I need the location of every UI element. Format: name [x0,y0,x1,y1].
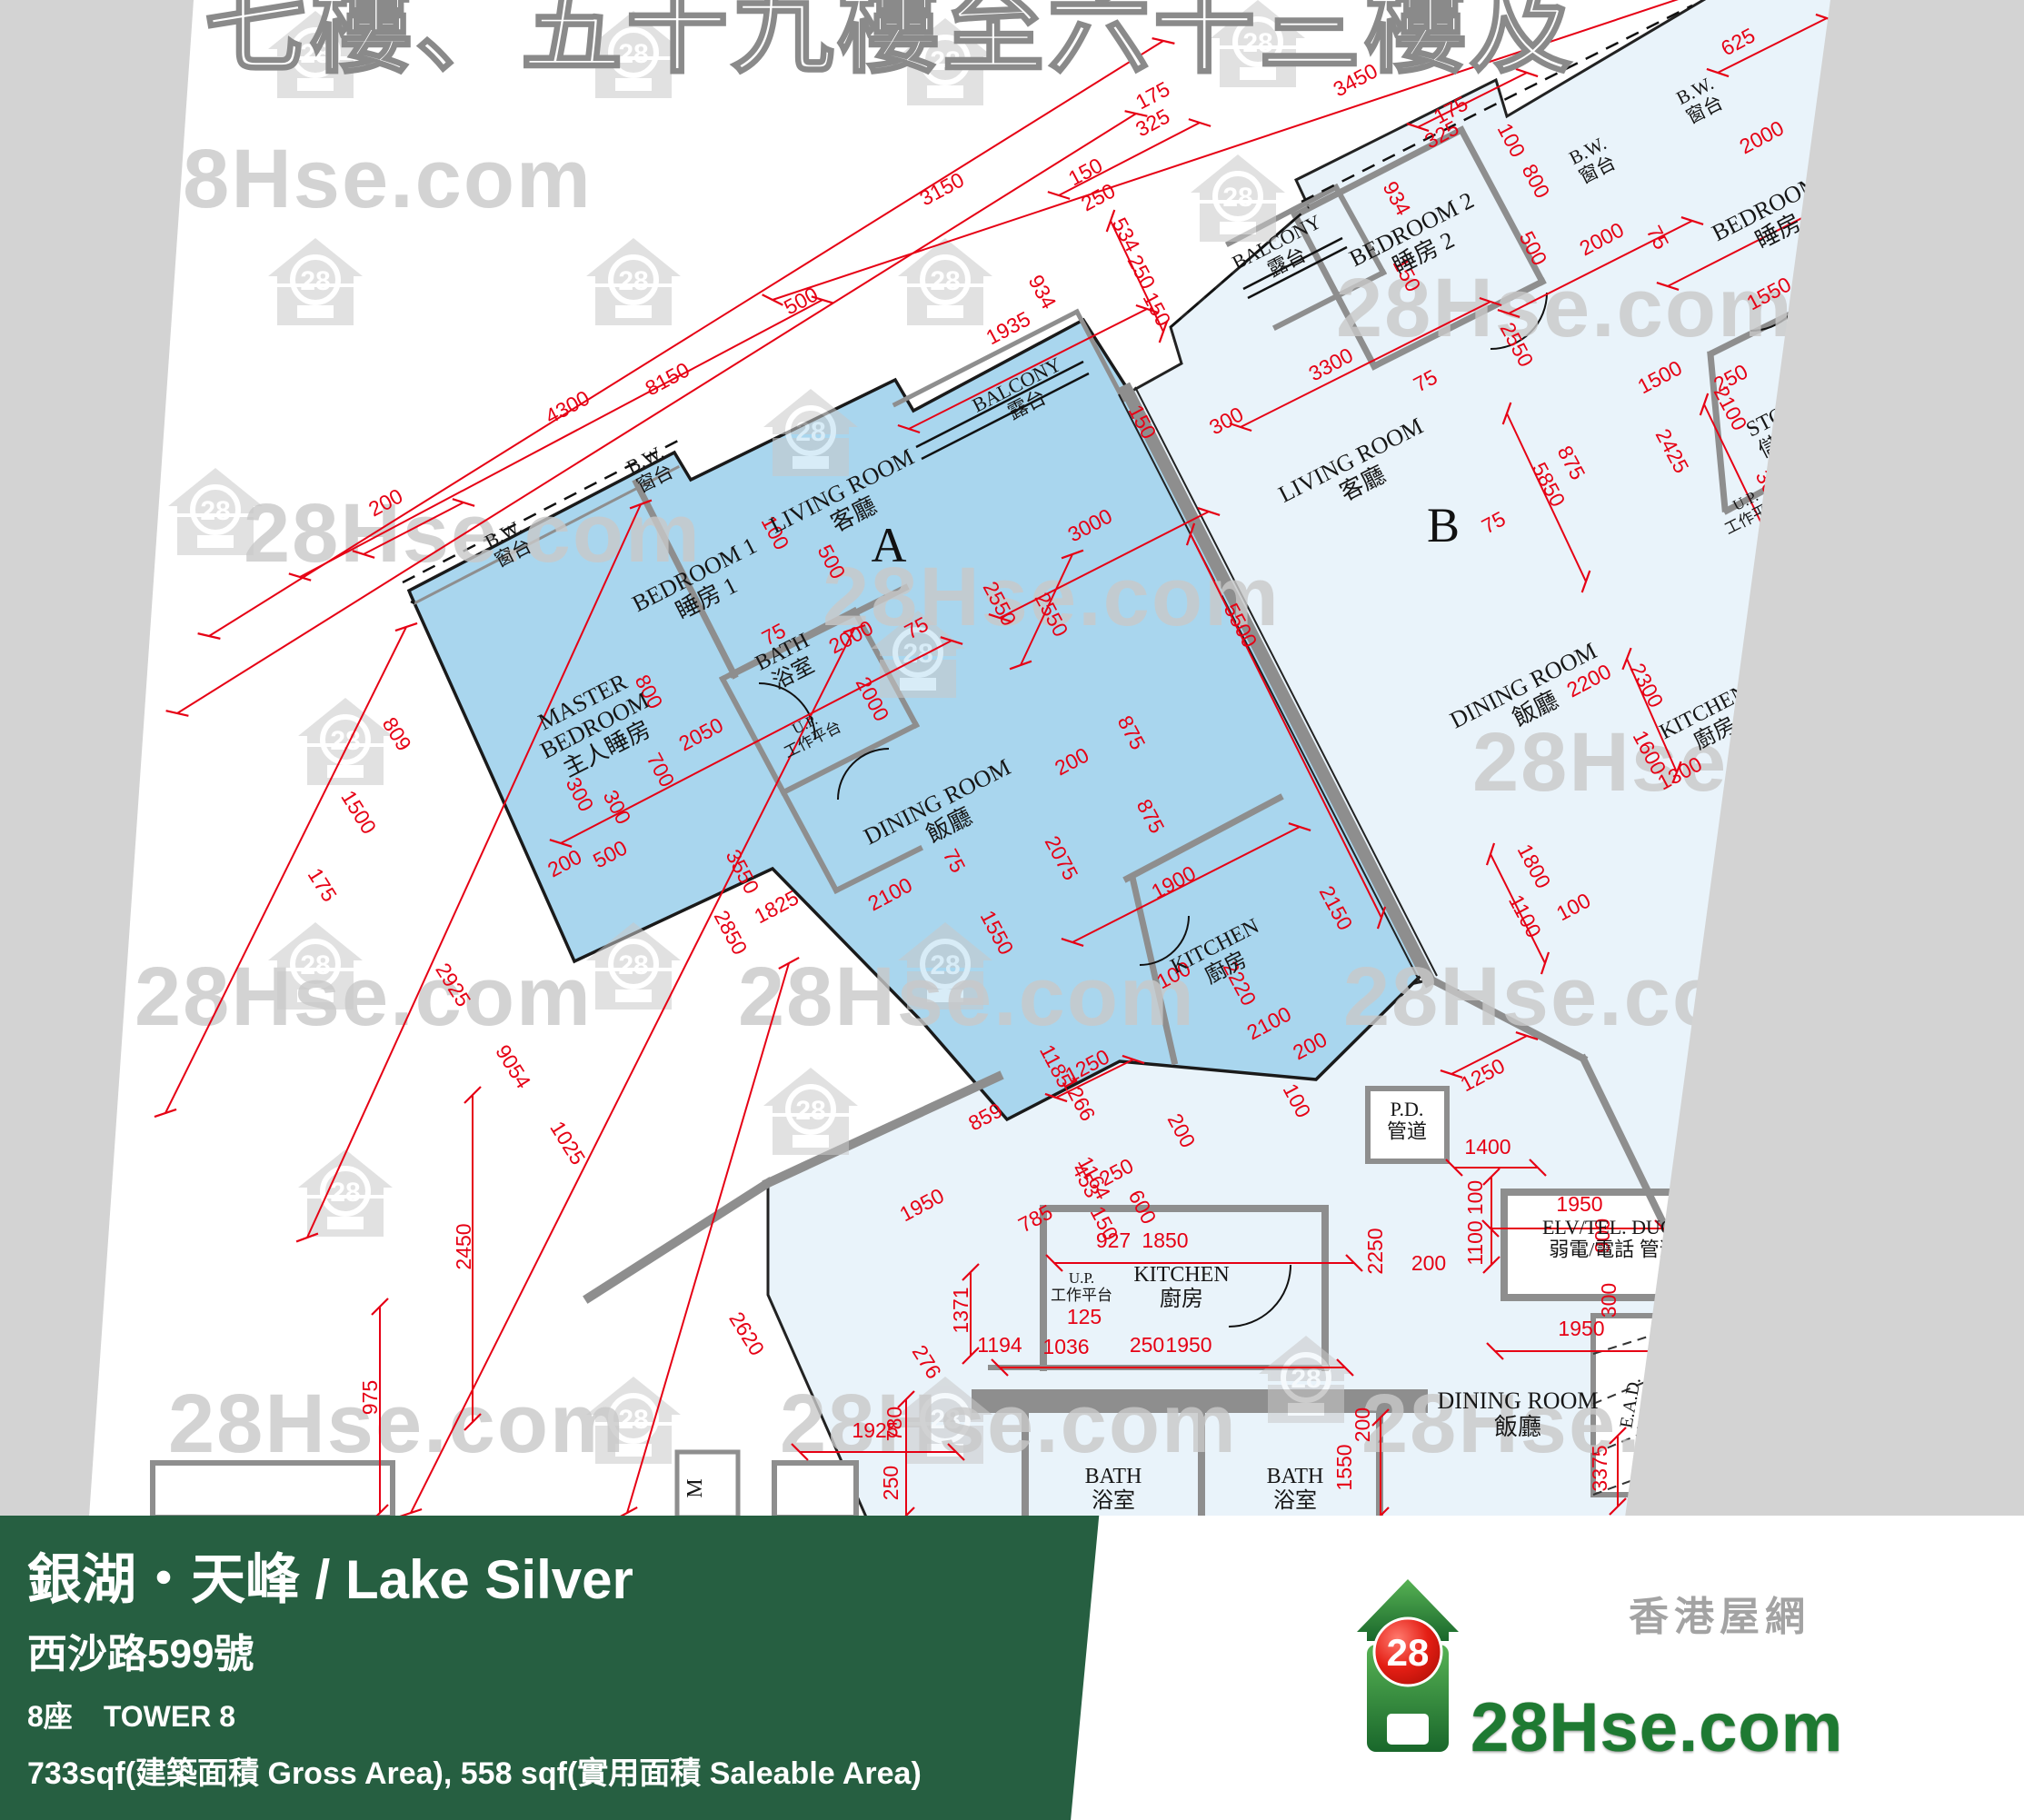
watermark-house-slot [793,1135,829,1148]
watermark-house-slot [327,1217,364,1229]
watermark-badge-text: 28 [618,950,648,980]
watermark-house-slot [197,535,234,548]
watermark-house-slot [297,305,334,318]
watermark-house-slot [793,456,829,469]
room-label-line: KITCHEN [1133,1263,1229,1287]
dim-tick [198,633,221,639]
room-label: BATH浴室 [1267,1465,1324,1513]
dim-value: 125 [1067,1305,1102,1328]
watermark-house-icon: 28 [298,1149,393,1237]
dim-tick [1189,119,1211,126]
dim-value: 934 [1024,271,1062,313]
watermark-house-icon: 28 [898,238,992,325]
room-label: M [683,1478,707,1497]
dim-value: 1925 [852,1418,898,1442]
room-label-line: 飯廳 [1494,1414,1541,1440]
cut-room-bottom-left [153,1463,393,1517]
watermark-house-slot [1220,222,1256,234]
dim-line [627,963,789,1513]
dim-value: 200 [1411,1251,1446,1275]
watermark-text: 28Hse.com [738,950,1196,1043]
dim-value: 300 [1597,1283,1620,1318]
dim-value: 2620 [724,1308,769,1359]
dim-value: 1935 [982,306,1034,349]
dim-value: 8150 [642,357,693,400]
room-label-line: 工作平台 [1051,1287,1112,1304]
dim-value: 2450 [452,1223,475,1269]
watermark-badge-text: 28 [795,417,825,447]
watermark-badge-text: 28 [795,1096,825,1126]
dim-value: 3150 [916,167,968,210]
dim-value: 250 [1130,1333,1164,1357]
watermark-badge-text: 28 [330,1178,360,1208]
watermark-house-icon: 28 [586,238,681,325]
watermark-house-slot [615,990,652,1002]
watermark-text: 28Hse.com [135,950,593,1043]
dim-value: 175 [304,864,342,906]
watermark-house-slot [1288,1403,1324,1416]
dim-value: 250 [879,1466,902,1500]
dim-value: 1100 [1463,1220,1487,1265]
watermark-text: 28Hse.com [135,133,593,225]
watermark-text: 28Hse.com [168,1377,626,1470]
watermark-house-slot [927,305,963,318]
site-logo-block: 28 28Hse.com 香港屋網 [1309,1570,1999,1815]
page-margin-left [0,0,194,1517]
dim-value: 100 [1463,1180,1487,1215]
watermark-badge-text: 28 [930,266,960,296]
plan-title-cropped: 七樓、五十九樓至六十三樓及 [204,0,1575,93]
watermark-house-icon: 28 [763,1068,858,1155]
dim-value: 200 [1351,1407,1374,1442]
watermark-house-slot [900,678,936,691]
dim-value: 1500 [336,786,381,838]
room-label-line: DINING ROOM [1438,1387,1599,1414]
watermark-badge-text: 28 [200,496,230,526]
watermark-house-icon: 28 [268,238,363,325]
dim-value: 1950 [1556,1192,1602,1216]
cut-room-bottom-left2 [774,1463,856,1517]
area-line: 733sqf(建築面積 Gross Area), 558 sqf(實用面積 Sa… [27,1748,922,1793]
room-label-line: BATH [1085,1465,1142,1488]
estate-name: 銀湖・天峰 / Lake Silver [27,1536,633,1615]
watermark-badge-text: 28 [1222,183,1252,213]
tower-line: 8座TOWER 8 [27,1694,235,1735]
dim-value: 2850 [710,907,753,959]
dim-value: 1400 [1464,1135,1511,1159]
dim-tick [166,711,189,716]
dim-tick [395,623,417,631]
room-label-line: BATH [1267,1465,1324,1488]
watermark-badge-text: 28 [618,266,648,296]
watermark-house-icon: 28 [1191,154,1285,242]
dim-value: 534 [1108,214,1145,255]
dim-value: 150 [1139,288,1176,330]
dim-value: 4300 [542,385,593,428]
room-label-line: 廚房 [1160,1287,1203,1311]
room-label-line: 浴室 [1092,1488,1135,1513]
room-label-line: 管道 [1387,1120,1427,1143]
logo-site-text: 28Hse.com [1471,1688,1843,1767]
dim-value: 927 [1096,1228,1131,1252]
dim-value: 1550 [1332,1444,1356,1490]
unit-letter: B [1427,498,1460,552]
dim-value: 1194 [977,1333,1022,1357]
tower-zh: 8座 [27,1700,73,1733]
watermark-house-slot [615,305,652,318]
logo-house-icon: 28 [1354,1577,1461,1755]
dim-value: 9054 [491,1040,535,1092]
tower-en: TOWER 8 [104,1700,235,1733]
dim-value: 1950 [1165,1333,1211,1357]
estate-address: 西沙路599號 [27,1621,254,1679]
watermark-text: 28Hse.com [244,487,702,580]
watermark-text: 28Hse.com [780,1377,1238,1470]
room-label: P.D.管道 [1387,1098,1427,1143]
dim-tick [155,1109,176,1117]
screenshot-root: 2828282828282828282828282828282828282828… [0,0,2024,1820]
wall-segment [589,1183,768,1298]
unit-letter: A [872,518,907,572]
bottom-banner: 銀湖・天峰 / Lake Silver 西沙路599號 8座TOWER 8 73… [0,1516,2024,1820]
room-label-line: U.P. [1069,1269,1094,1287]
dim-tick [1048,192,1070,199]
dim-value: 1850 [1142,1228,1188,1252]
watermark-badge-text: 28 [300,266,330,296]
logo-tagline: 香港屋網 [1629,1584,1810,1642]
dim-value: 325 [1132,104,1173,141]
dim-value: 975 [358,1380,382,1415]
dim-value: 2250 [1363,1228,1387,1274]
dim-value: 1371 [949,1287,972,1333]
dim-value: 1025 [545,1117,590,1169]
room-label-line: 弱電/電話 管道 [1549,1238,1680,1261]
room-label-line: 浴室 [1273,1488,1317,1513]
dim-value: 3375 [1588,1445,1611,1491]
floorplan-area: 2828282828282828282828282828282828282828… [0,0,2024,1517]
watermark-house-icon: 28 [763,389,858,476]
logo-badge-28: 28 [1387,1631,1430,1674]
room-label-line: P.D. [1391,1098,1424,1120]
room-label: BATH浴室 [1085,1465,1142,1513]
watermark-house-icon: 28 [298,698,393,785]
floorplan-svg: 2828282828282828282828282828282828282828… [0,0,2024,1517]
dim-value: 1036 [1042,1335,1089,1358]
dim-value: 1825 [751,885,803,928]
dim-value: 1950 [1558,1317,1604,1340]
room-label-line: M [683,1478,707,1497]
